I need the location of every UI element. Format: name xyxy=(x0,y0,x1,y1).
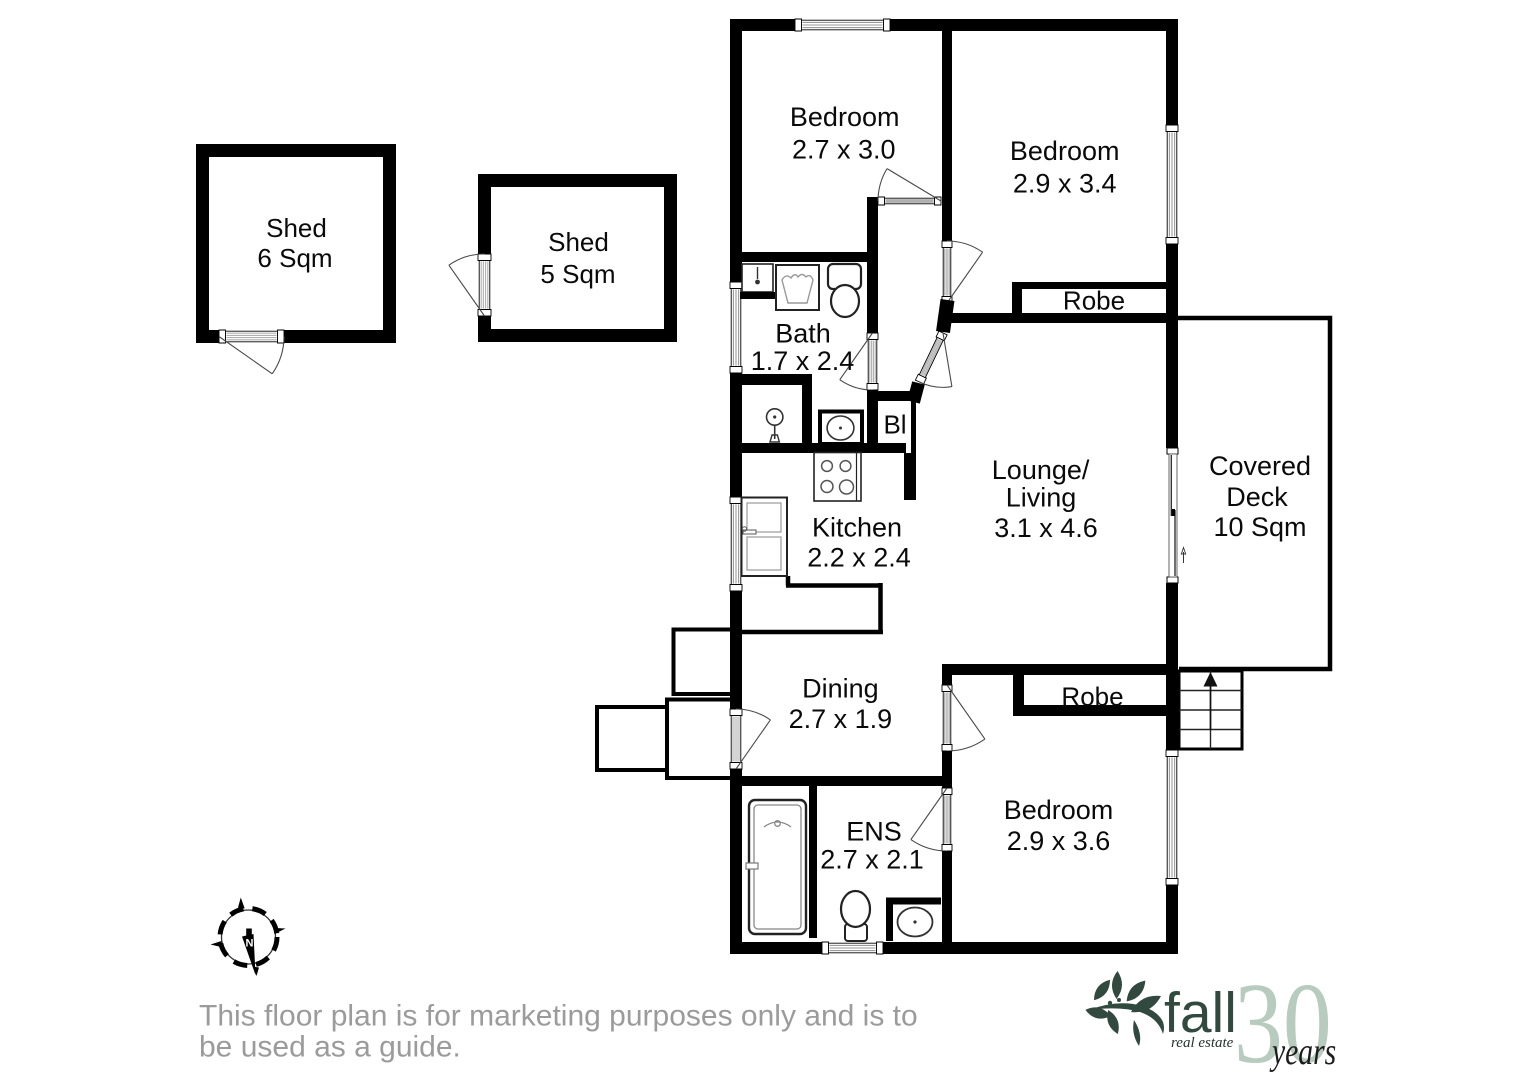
svg-text:This floor plan is for marketi: This floor plan is for marketing purpose… xyxy=(199,1000,918,1033)
svg-text:Robe: Robe xyxy=(1063,285,1125,315)
svg-text:Kitchen: Kitchen xyxy=(812,512,902,542)
svg-text:N: N xyxy=(246,938,254,950)
svg-text:2.7 x 2.1: 2.7 x 2.1 xyxy=(820,845,924,875)
svg-text:Bedroom: Bedroom xyxy=(1004,795,1114,825)
svg-text:1.7 x 2.4: 1.7 x 2.4 xyxy=(751,346,855,376)
svg-text:Bedroom: Bedroom xyxy=(790,102,900,132)
svg-text:2.7 x 1.9: 2.7 x 1.9 xyxy=(789,704,893,734)
svg-text:5 Sqm: 5 Sqm xyxy=(540,259,615,289)
svg-text:Lounge/: Lounge/ xyxy=(992,455,1090,485)
svg-text:Bath: Bath xyxy=(775,319,831,349)
svg-text:2.2 x 2.4: 2.2 x 2.4 xyxy=(807,542,911,572)
svg-text:2.9 x 3.6: 2.9 x 3.6 xyxy=(1007,826,1111,856)
svg-text:be used as a guide.: be used as a guide. xyxy=(199,1031,461,1064)
svg-text:Deck: Deck xyxy=(1226,482,1288,512)
svg-text:Shed: Shed xyxy=(266,213,327,243)
svg-text:3.1 x 4.6: 3.1 x 4.6 xyxy=(994,513,1098,543)
svg-text:Living: Living xyxy=(1006,483,1077,513)
svg-text:ENS: ENS xyxy=(846,816,902,846)
svg-text:2.9 x 3.4: 2.9 x 3.4 xyxy=(1013,169,1117,199)
svg-text:years: years xyxy=(1269,1032,1336,1073)
svg-text:2.7 x 3.0: 2.7 x 3.0 xyxy=(792,134,896,164)
svg-text:6 Sqm: 6 Sqm xyxy=(257,243,332,273)
svg-text:Robe: Robe xyxy=(1061,681,1123,711)
svg-text:real estate: real estate xyxy=(1171,1035,1234,1051)
svg-text:Covered: Covered xyxy=(1209,451,1311,481)
svg-text:Bl: Bl xyxy=(883,410,906,440)
svg-text:10 Sqm: 10 Sqm xyxy=(1213,512,1306,542)
svg-text:Bedroom: Bedroom xyxy=(1010,136,1120,166)
svg-text:Dining: Dining xyxy=(802,673,879,703)
svg-text:Shed: Shed xyxy=(548,227,609,257)
